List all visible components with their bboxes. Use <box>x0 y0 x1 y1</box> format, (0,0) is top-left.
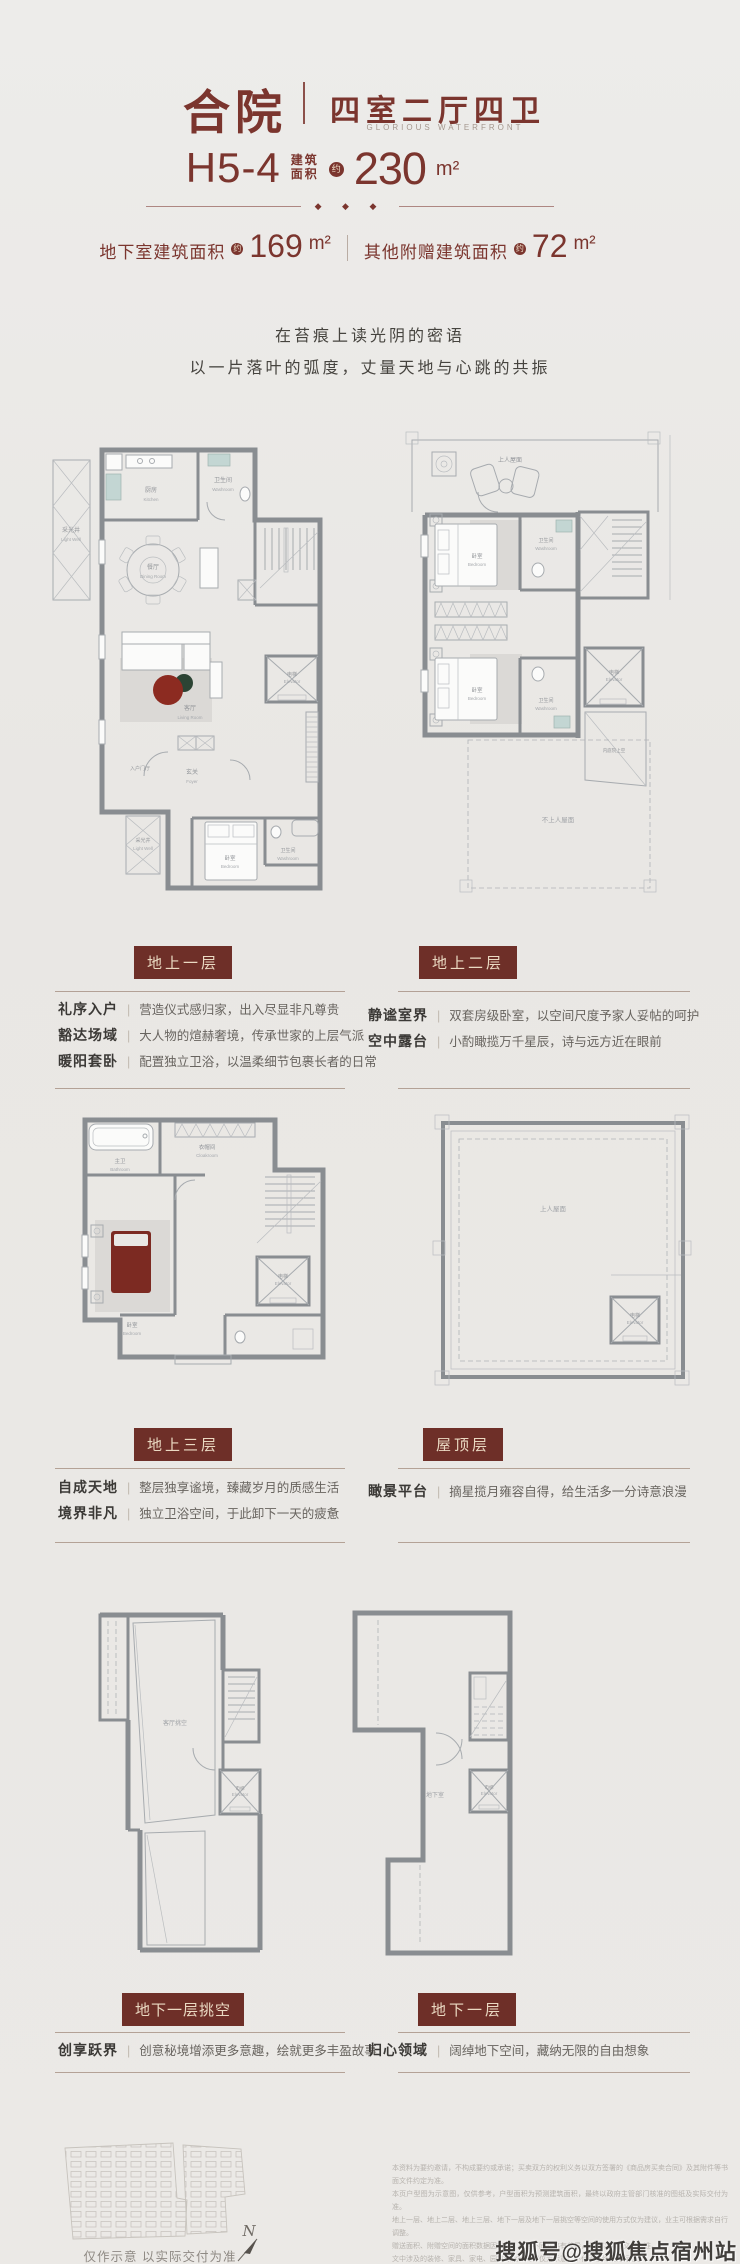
svg-text:电梯: 电梯 <box>278 1273 288 1280</box>
svg-text:Elevator: Elevator <box>284 679 301 684</box>
svg-text:Bedroom: Bedroom <box>468 696 487 701</box>
svg-text:Bathroom: Bathroom <box>110 1167 130 1172</box>
feature-title: 创享跃界 <box>58 2043 118 2057</box>
features-level-2: 静谧室界|双套房级卧室，以空间尺度予家人妥帖的呵护 空中露台|小酌瞰揽万千星辰，… <box>368 1008 699 1049</box>
svg-text:入户门厅: 入户门厅 <box>130 765 150 772</box>
site-plan-thumbnail <box>55 2140 255 2243</box>
svg-text:Elevator: Elevator <box>232 1792 249 1797</box>
sub-areas-row: 地下室建筑面积 约 169 m² 其他附赠建筑面积 约 72 m² <box>0 230 695 263</box>
subtitle-en: GLORIOUS WATERFRONT <box>330 123 560 132</box>
watermark: 搜狐号@搜狐焦点宿州站 <box>496 2236 737 2264</box>
svg-text:Bedroom: Bedroom <box>468 562 487 567</box>
svg-text:Washroom: Washroom <box>277 856 299 861</box>
rule <box>55 1542 345 1543</box>
approx-badge: 约 <box>514 243 526 255</box>
floor-badge-level-1: 地上一层 <box>134 946 232 979</box>
feature-separator: | <box>127 1029 130 1043</box>
feature-desc: 营造仪式感归家，出入尽显非凡尊贵 <box>139 1003 339 1017</box>
basement-area-group: 地下室建筑面积 约 169 m² <box>99 230 331 263</box>
svg-text:上人屋面: 上人屋面 <box>540 1204 567 1213</box>
svg-text:厨房: 厨房 <box>145 486 157 494</box>
svg-text:Dining Room: Dining Room <box>140 574 166 579</box>
svg-text:卫生间: 卫生间 <box>214 476 232 484</box>
feature-title: 空中露台 <box>368 1034 428 1048</box>
svg-text:衣帽间: 衣帽间 <box>199 1143 216 1151</box>
rule <box>55 991 345 992</box>
svg-text:Cloakroom: Cloakroom <box>196 1153 218 1158</box>
svg-text:电梯: 电梯 <box>609 669 619 676</box>
feature-title: 豁达场域 <box>58 1028 118 1042</box>
areas-separator <box>347 235 348 261</box>
rule <box>55 1088 345 1089</box>
feature-separator: | <box>437 1009 440 1023</box>
feature-title: 境界非凡 <box>58 1506 118 1520</box>
floor-badge-roof: 屋顶层 <box>423 1428 503 1461</box>
floor-badge-basement-void: 地下一层挑空 <box>122 1993 244 2026</box>
svg-text:Bedroom: Bedroom <box>123 1331 142 1336</box>
bonus-area-value: 72 <box>532 230 568 262</box>
svg-text:不上人屋面: 不上人屋面 <box>542 815 575 824</box>
floorplan-level-3: 主卫 Bathroom 衣帽间 Cloakroom 卧室 Bedroom 电梯 … <box>25 1105 355 1405</box>
feature-desc: 独立卫浴空间，于此卸下一天的疲惫 <box>139 1507 339 1521</box>
svg-text:电梯: 电梯 <box>630 1312 640 1319</box>
approx-badge: 约 <box>329 162 344 177</box>
feature-title: 静谧室界 <box>368 1008 428 1022</box>
feature-desc: 配置独立卫浴，以温柔细节包裹长者的日常 <box>139 1055 377 1069</box>
basement-area-unit: m² <box>309 233 331 255</box>
rule <box>398 2032 690 2033</box>
bonus-area-unit: m² <box>573 233 595 255</box>
area-unit: m² <box>436 158 459 181</box>
svg-text:卧室: 卧室 <box>126 1321 138 1329</box>
feature-title: 礼序入户 <box>58 1002 118 1016</box>
features-basement: 归心领域|阔绰地下空间，藏纳无限的自由想象 <box>368 2043 649 2058</box>
feature-desc: 阔绰地下空间，藏纳无限的自由想象 <box>449 2044 649 2058</box>
floorplan-level-1: 采光井 Light Well 厨房 Kitchen 卫生间 Washroom <box>20 420 350 925</box>
disclaimer-line: 本资料为要约邀请，不构成要约或承诺；买卖双方的权利义务以双方签署的《商品房买卖合… <box>392 2162 728 2188</box>
features-level-3: 自成天地|整层独享谧境，臻藏岁月的质感生活 境界非凡|独立卫浴空间，于此卸下一天… <box>58 1480 339 1521</box>
bonus-area-group: 其他附赠建筑面积 约 72 m² <box>364 230 596 263</box>
svg-text:Elevator: Elevator <box>606 677 623 682</box>
area-prefix-line2: 面积 <box>291 167 319 181</box>
bonus-area-label: 其他附赠建筑面积 <box>364 238 508 263</box>
floorplan-level-2: 上人屋面 卧室 Bedroom 卧室 Bedroom <box>380 420 720 920</box>
svg-text:采光井: 采光井 <box>135 837 150 844</box>
feature-row: 创享跃界|创意秘境增添更多意趣，绘就更多丰盈故事 <box>58 2043 377 2058</box>
svg-text:N: N <box>241 2222 256 2240</box>
feature-separator: | <box>127 2044 130 2058</box>
svg-text:Light Well: Light Well <box>61 537 81 542</box>
feature-row: 礼序入户|营造仪式感归家，出入尽显非凡尊贵 <box>58 1002 377 1017</box>
poster-page: 合院 四室二厅四卫 GLORIOUS WATERFRONT H5-4 建筑 面积… <box>0 0 740 2264</box>
divider-line-right <box>399 206 554 207</box>
svg-text:Washroom: Washroom <box>535 706 557 711</box>
diamond-icons: ◆ ◆ ◆ <box>315 201 386 212</box>
features-level-1: 礼序入户|营造仪式感归家，出入尽显非凡尊贵 豁达场域|大人物的煊赫奢境，传承世家… <box>58 1002 377 1069</box>
feature-separator: | <box>127 1055 130 1069</box>
poem-line-2: 以一片落叶的弧度，丈量天地与心跳的共振 <box>0 354 740 378</box>
features-roof: 瞰景平台|摘星揽月雍容自得，给生活多一分诗意浪漫 <box>368 1484 687 1499</box>
poem-line-1: 在苔痕上读光阴的密语 <box>0 322 740 346</box>
svg-text:Kitchen: Kitchen <box>143 497 159 502</box>
feature-desc: 小酌瞰揽万千星辰，诗与远方近在眼前 <box>449 1035 662 1049</box>
feature-separator: | <box>127 1003 130 1017</box>
rule <box>398 991 690 992</box>
svg-text:客厅: 客厅 <box>184 704 196 712</box>
svg-text:Elevator: Elevator <box>481 1791 498 1796</box>
feature-title: 自成天地 <box>58 1480 118 1494</box>
floorplan-roof: 上人屋面 电梯 Elevator <box>385 1105 720 1405</box>
area-prefix-line1: 建筑 <box>291 153 319 167</box>
svg-text:卧室: 卧室 <box>471 686 483 694</box>
feature-desc: 双套房级卧室，以空间尺度予家人妥帖的呵护 <box>449 1009 699 1023</box>
svg-text:主卫: 主卫 <box>114 1157 126 1165</box>
feature-separator: | <box>437 1035 440 1049</box>
feature-row: 空中露台|小酌瞰揽万千星辰，诗与远方近在眼前 <box>368 1034 699 1049</box>
svg-text:Washroom: Washroom <box>212 487 234 492</box>
feature-desc: 大人物的煊赫奢境，传承世家的上层气派 <box>139 1029 364 1043</box>
feature-desc: 整层独享谧境，臻藏岁月的质感生活 <box>139 1481 339 1495</box>
rule <box>55 2032 345 2033</box>
title-divider <box>303 82 305 124</box>
svg-text:内庭院上空: 内庭院上空 <box>603 747 626 754</box>
svg-text:卫生间: 卫生间 <box>538 697 553 704</box>
svg-text:客厅挑空: 客厅挑空 <box>163 1719 187 1727</box>
svg-text:Bedroom: Bedroom <box>221 864 240 869</box>
svg-text:Foyer: Foyer <box>186 779 198 784</box>
rule <box>398 2072 690 2073</box>
floor-badge-level-3: 地上三层 <box>134 1428 232 1461</box>
feature-title: 归心领域 <box>368 2043 428 2057</box>
svg-text:Light Well: Light Well <box>133 846 153 851</box>
feature-separator: | <box>127 1507 130 1521</box>
floorplan-basement-void: 电梯 Elevator 客厅挑空 <box>55 1565 305 1975</box>
svg-text:卧室: 卧室 <box>224 854 236 862</box>
svg-text:电梯: 电梯 <box>287 671 297 678</box>
features-basement-void: 创享跃界|创意秘境增添更多意趣，绘就更多丰盈故事 <box>58 2043 377 2058</box>
feature-separator: | <box>437 1485 440 1499</box>
floor-badge-level-2: 地上二层 <box>419 946 517 979</box>
svg-text:Elevator: Elevator <box>275 1281 292 1286</box>
basement-area-label: 地下室建筑面积 <box>99 238 225 263</box>
svg-text:上人屋面: 上人屋面 <box>498 456 522 464</box>
area-value: 230 <box>354 146 426 191</box>
disclaimer-line: 本页户型图为示意图，仅供参考，户型面积为预测建筑面积，最终以政府主管部门核准的图… <box>392 2188 728 2214</box>
feature-desc: 创意秘境增添更多意趣，绘就更多丰盈故事 <box>139 2044 377 2058</box>
rule <box>55 1468 345 1469</box>
area-prefix: 建筑 面积 <box>291 153 319 181</box>
feature-row: 归心领域|阔绰地下空间，藏纳无限的自由想象 <box>368 2043 649 2058</box>
svg-text:采光井: 采光井 <box>62 526 80 534</box>
svg-text:Washroom: Washroom <box>535 546 557 551</box>
rule <box>55 2072 345 2073</box>
svg-text:地下室: 地下室 <box>426 1791 444 1799</box>
feature-row: 暖阳套卧|配置独立卫浴，以温柔细节包裹长者的日常 <box>58 1054 377 1069</box>
feature-desc: 摘星揽月雍容自得，给生活多一分诗意浪漫 <box>449 1485 687 1499</box>
basement-area-value: 169 <box>249 230 302 262</box>
svg-text:卫生间: 卫生间 <box>538 537 553 544</box>
svg-text:电梯: 电梯 <box>236 1785 245 1792</box>
feature-row: 瞰景平台|摘星揽月雍容自得，给生活多一分诗意浪漫 <box>368 1484 687 1499</box>
site-plan-caption: 仅作示意 以实际交付为准 <box>55 2246 265 2264</box>
svg-text:卧室: 卧室 <box>471 552 483 560</box>
feature-title: 瞰景平台 <box>368 1484 428 1498</box>
svg-text:卫生间: 卫生间 <box>280 847 295 854</box>
feature-row: 豁达场域|大人物的煊赫奢境，传承世家的上层气派 <box>58 1028 377 1043</box>
svg-text:餐厅: 餐厅 <box>147 563 159 571</box>
approx-badge: 约 <box>231 243 243 255</box>
floorplan-basement: 电梯 Elevator 地下室 <box>340 1565 590 1975</box>
feature-row: 静谧室界|双套房级卧室，以空间尺度予家人妥帖的呵护 <box>368 1008 699 1023</box>
rule <box>398 1542 690 1543</box>
feature-row: 境界非凡|独立卫浴空间，于此卸下一天的疲惫 <box>58 1506 339 1521</box>
feature-separator: | <box>437 2044 440 2058</box>
rule <box>398 1468 690 1469</box>
unit-model: H5-4 <box>186 146 281 190</box>
diamond-divider: ◆ ◆ ◆ <box>0 201 700 212</box>
svg-text:Elevator: Elevator <box>627 1320 644 1325</box>
feature-row: 自成天地|整层独享谧境，臻藏岁月的质感生活 <box>58 1480 339 1495</box>
divider-line-left <box>146 206 301 207</box>
svg-text:电梯: 电梯 <box>485 1784 494 1791</box>
page-title: 合院 <box>183 74 287 143</box>
spec-row: H5-4 建筑 面积 约 230 m² <box>0 146 645 191</box>
rule <box>398 1088 690 1089</box>
svg-text:玄关: 玄关 <box>186 768 198 776</box>
feature-title: 暖阳套卧 <box>58 1054 118 1068</box>
feature-separator: | <box>127 1481 130 1495</box>
svg-text:Living Room: Living Room <box>177 715 202 720</box>
floor-badge-basement: 地下一层 <box>418 1993 516 2026</box>
